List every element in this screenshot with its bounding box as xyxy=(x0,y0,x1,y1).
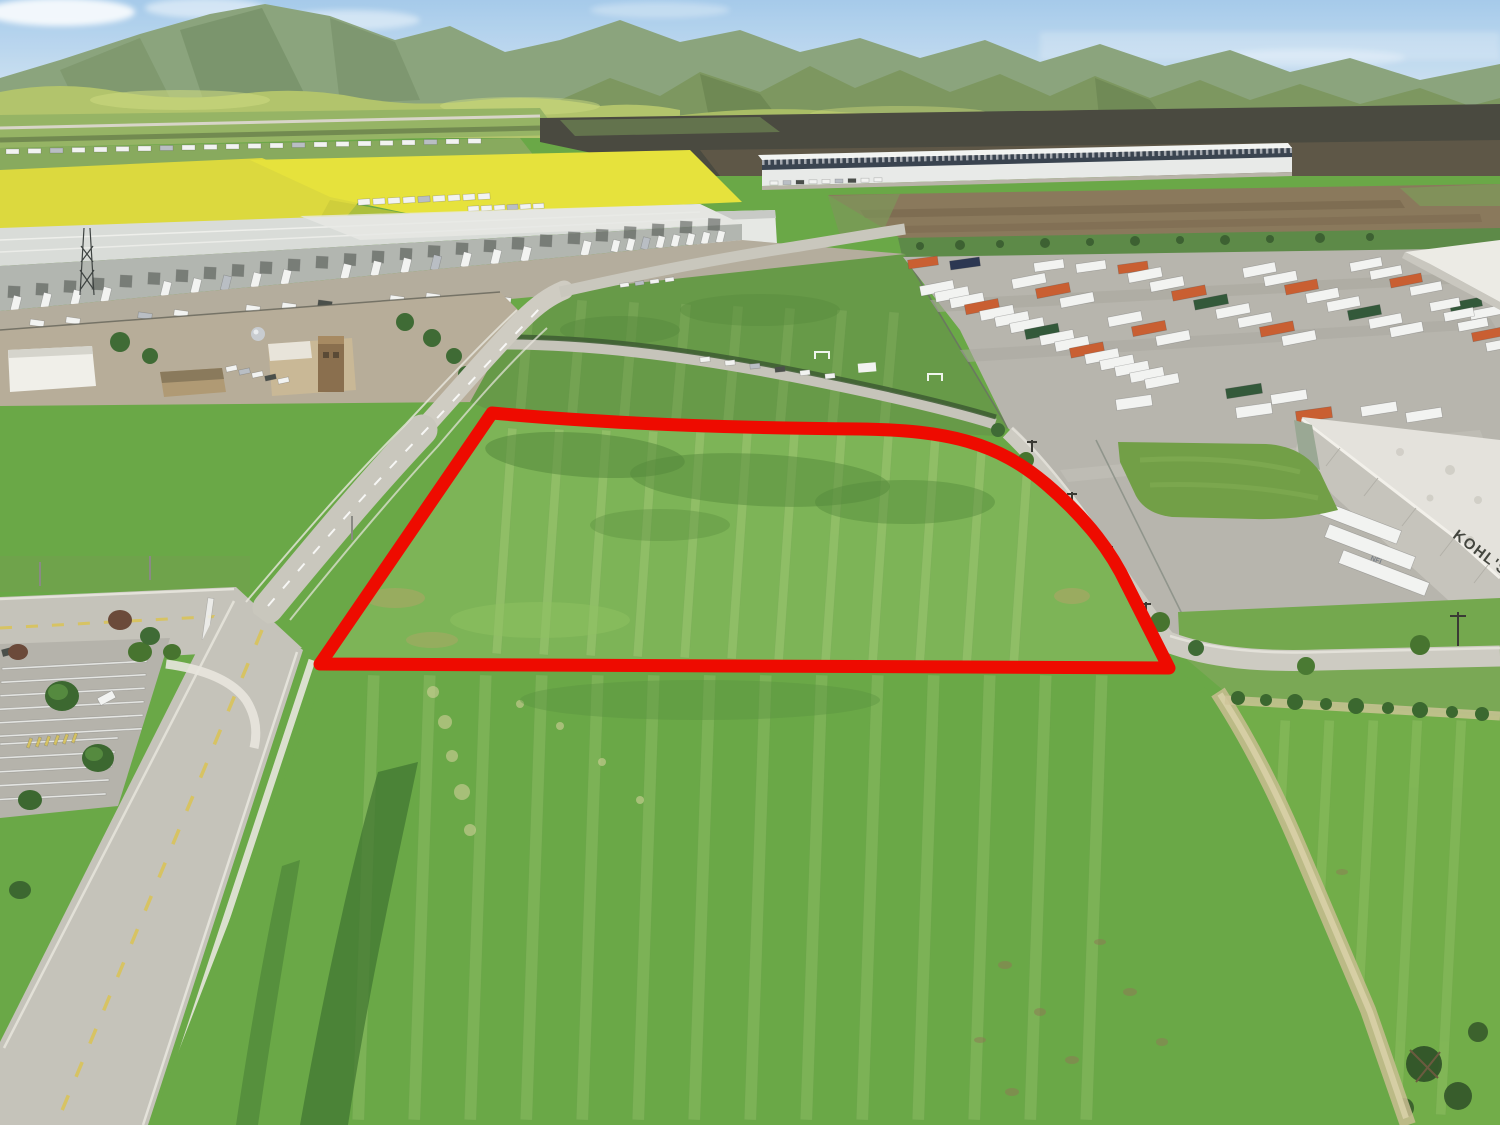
aerial-photo-canvas: KOHL'S NFI xyxy=(0,0,1500,1125)
fire-station-tower xyxy=(318,336,344,392)
water-tank xyxy=(251,327,265,341)
aerial-photo: KOHL'S NFI xyxy=(0,0,1500,1125)
white-container xyxy=(858,362,877,373)
brown-dirt-field xyxy=(828,184,1500,260)
foreground-field xyxy=(150,656,1398,1125)
